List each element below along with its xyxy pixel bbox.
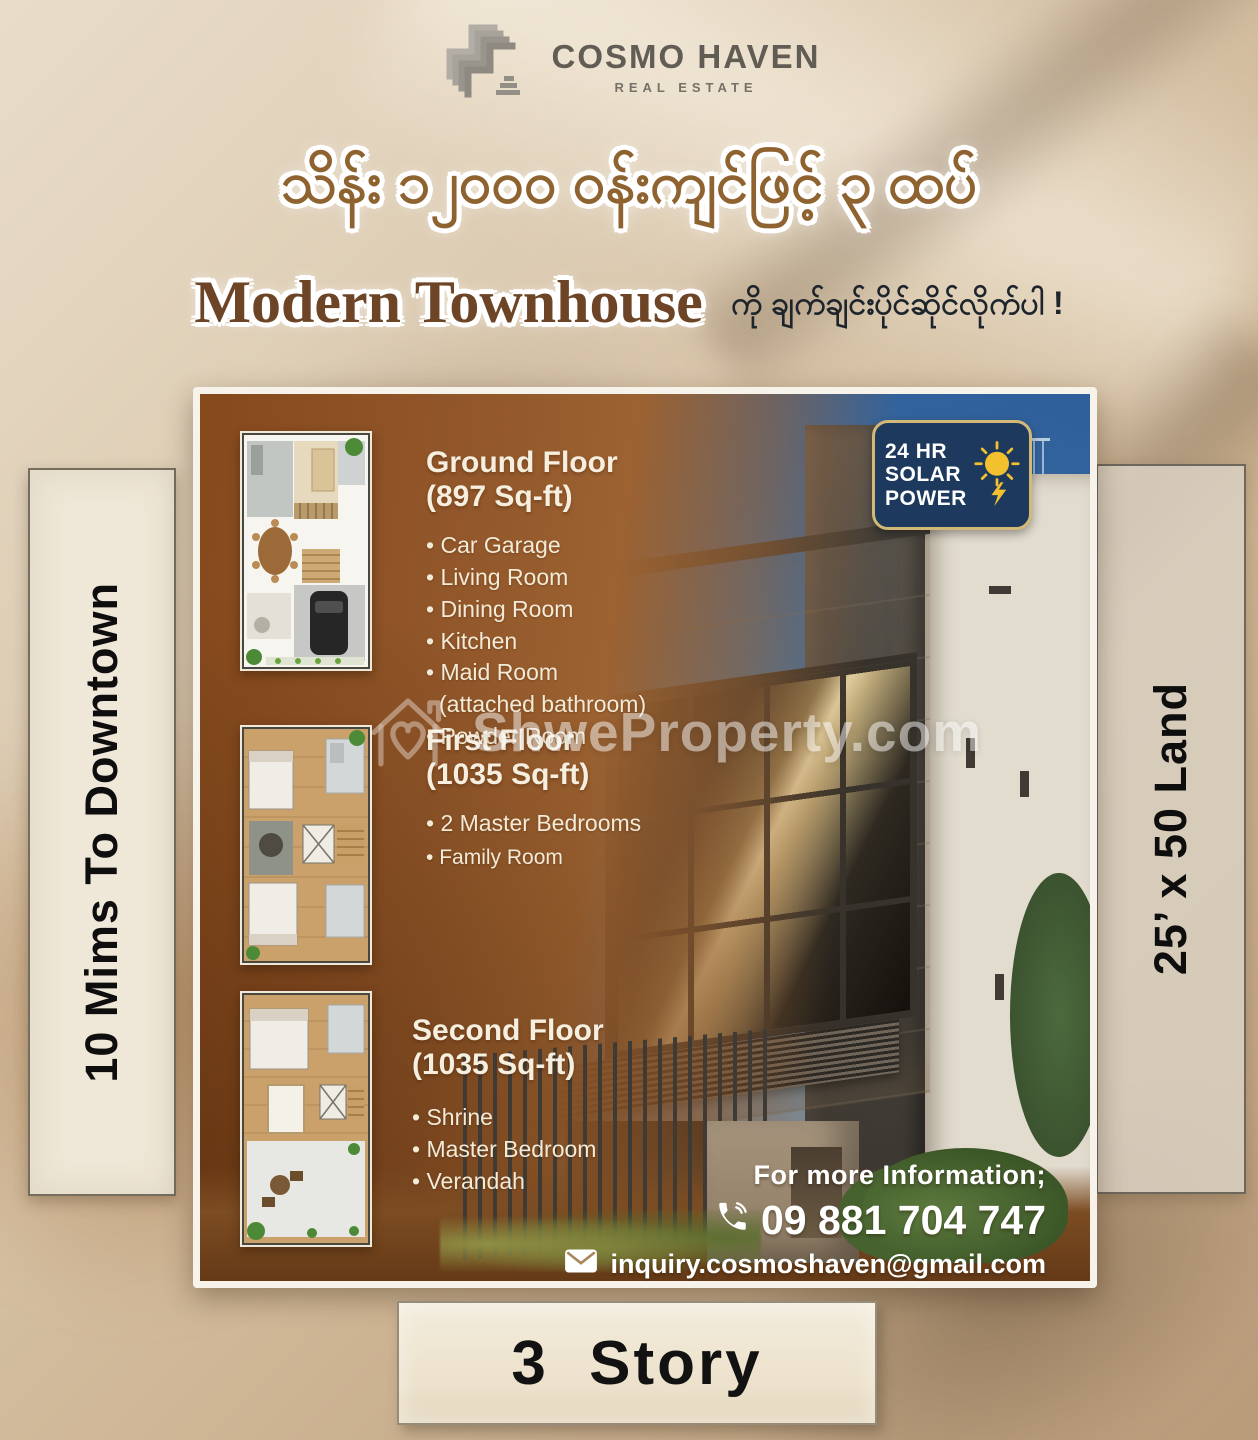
ground-floor-title: Ground Floor (897 Sq-ft): [426, 446, 646, 514]
subheadline: Modern Townhouse ကို ချက်ချင်းပိုင်ဆိုင်…: [0, 268, 1258, 337]
cosmo-haven-logo-icon: [438, 20, 530, 113]
floor-plan-first-thumbnail: [240, 725, 372, 965]
flyer-page: COSMO HAVEN REAL ESTATE သိန်း ၁၂၀၀၀ ဝန်း…: [0, 0, 1258, 1440]
contact-email: inquiry.cosmoshaven@gmail.com: [611, 1249, 1046, 1280]
brand-name: COSMO HAVEN: [552, 38, 821, 76]
floor-feature-item: Shrine: [412, 1102, 604, 1134]
brand-header: COSMO HAVEN REAL ESTATE: [0, 14, 1258, 118]
floor-feature-item: Family Room: [426, 844, 641, 873]
second-floor-title: Second Floor (1035 Sq-ft): [412, 1014, 604, 1082]
floor-area: (897 Sq-ft): [426, 480, 646, 514]
solar-badge-line: POWER: [885, 487, 967, 510]
banner-land-label: 25’ x 50 Land: [1145, 682, 1197, 975]
floor-feature-item: Dining Room: [426, 594, 646, 626]
watermark-text: ShweProperty.com: [472, 700, 982, 764]
sun-lightning-icon: [973, 439, 1021, 512]
contact-block: For more Information; 09 881 704 747: [563, 1160, 1046, 1281]
floor-plan-ground-thumbnail: [240, 431, 372, 671]
floor-feature-item: Kitchen: [426, 626, 646, 658]
story-count-box: 3 Story: [397, 1301, 877, 1425]
floor-feature-item: Living Room: [426, 562, 646, 594]
floor-feature-item: Maid Room: [426, 657, 646, 689]
solar-badge-text: 24 HR SOLAR POWER: [885, 440, 967, 509]
brand-tagline: REAL ESTATE: [552, 80, 821, 95]
solar-badge-line: SOLAR: [885, 463, 967, 486]
contact-phone-row: 09 881 704 747: [563, 1197, 1046, 1244]
watermark: ShweProperty.com: [360, 686, 982, 777]
floor-name: Second Floor: [412, 1014, 604, 1048]
phone-icon: [715, 1197, 749, 1244]
brand-text: COSMO HAVEN REAL ESTATE: [552, 38, 821, 95]
story-count-label: 3 Story: [511, 1328, 762, 1399]
property-card: Ground Floor (897 Sq-ft) Car Garage Livi…: [193, 387, 1097, 1288]
house-heart-icon: [360, 686, 456, 777]
floor-feature-item: Car Garage: [426, 530, 646, 562]
solar-badge-line: 24 HR: [885, 440, 967, 463]
banner-downtown-label: 10 Mims To Downtown: [76, 582, 128, 1083]
floor-area: (1035 Sq-ft): [412, 1048, 604, 1082]
banner-land-size: 25’ x 50 Land: [1096, 464, 1246, 1194]
first-floor-features: 2 Master Bedrooms Family Room: [426, 808, 641, 873]
floor-name: Ground Floor: [426, 446, 646, 480]
envelope-icon: [563, 1248, 599, 1281]
headline-burmese: သိန်း ၁၂၀၀၀ ဝန်းကျင်ဖြင့် ၃ ထပ်: [0, 138, 1258, 228]
subheadline-english: Modern Townhouse: [194, 268, 702, 337]
contact-phone: 09 881 704 747: [761, 1197, 1046, 1244]
solar-power-badge: 24 HR SOLAR POWER: [872, 420, 1032, 530]
contact-email-row: inquiry.cosmoshaven@gmail.com: [563, 1248, 1046, 1281]
floor-feature-item: 2 Master Bedrooms: [426, 808, 641, 840]
contact-heading: For more Information;: [563, 1160, 1046, 1191]
tree-right: [1010, 873, 1097, 1157]
floor-plan-second-thumbnail: [240, 991, 372, 1247]
subheadline-burmese: ကို ချက်ချင်းပိုင်ဆိုင်လိုက်ပါ !: [731, 279, 1064, 327]
banner-downtown-distance: 10 Mims To Downtown: [28, 468, 176, 1196]
